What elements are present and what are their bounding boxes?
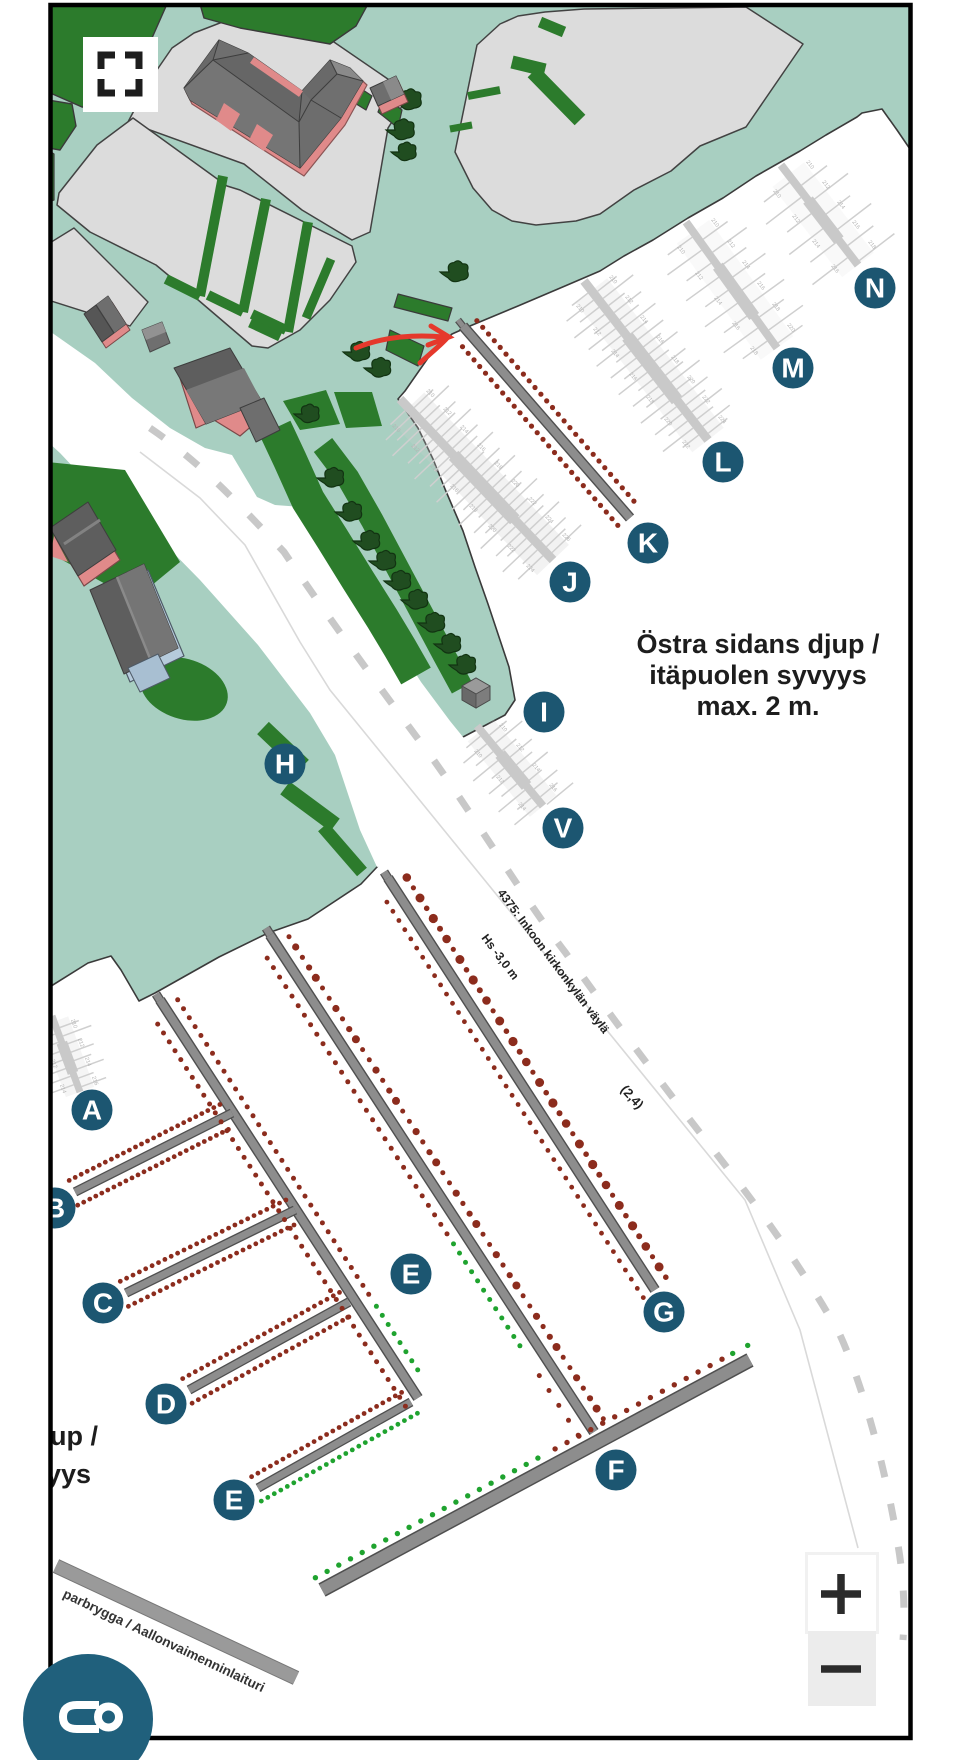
svg-text:M: M: [781, 353, 804, 384]
svg-text:K: K: [638, 528, 658, 559]
svg-text:J: J: [562, 567, 578, 598]
svg-text:yys: yys: [46, 1459, 91, 1489]
svg-text:D: D: [156, 1389, 176, 1420]
svg-text:E: E: [225, 1485, 244, 1516]
svg-text:up /: up /: [50, 1421, 98, 1451]
svg-text:N: N: [865, 273, 885, 304]
svg-text:H: H: [275, 749, 295, 780]
svg-text:F: F: [607, 1455, 624, 1486]
svg-text:V: V: [554, 813, 573, 844]
svg-text:G: G: [653, 1297, 675, 1328]
svg-text:L: L: [714, 447, 731, 478]
svg-text:E: E: [402, 1259, 421, 1290]
svg-text:max. 2 m.: max. 2 m.: [696, 691, 819, 721]
svg-text:I: I: [540, 697, 548, 728]
svg-text:A: A: [82, 1095, 102, 1126]
svg-text:Östra sidans djup /: Östra sidans djup /: [636, 629, 880, 659]
svg-text:itäpuolen syvyys: itäpuolen syvyys: [649, 660, 867, 690]
svg-text:C: C: [93, 1288, 113, 1319]
